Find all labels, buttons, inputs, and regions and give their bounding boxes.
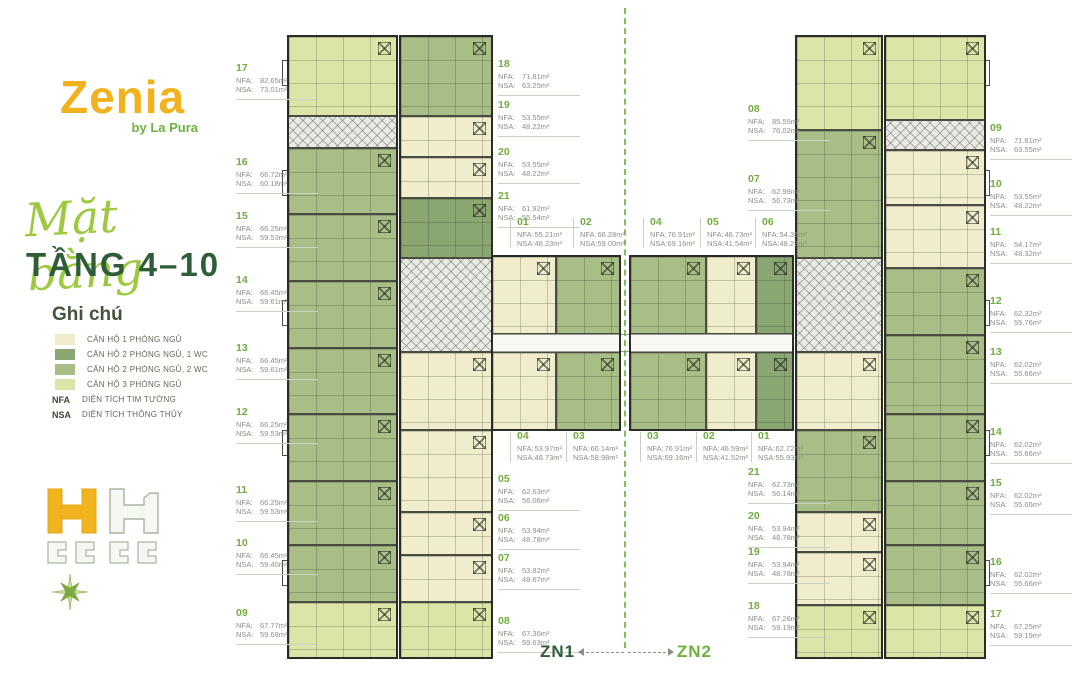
area-value: 55.93m² [776, 453, 804, 462]
area-value: 71.81m² [1014, 136, 1042, 145]
area-value: 59.19m² [1014, 631, 1042, 640]
area-key: NFA: [748, 524, 772, 533]
area-key: NSA: [748, 623, 772, 632]
nsa-row: NSA:48.22m² [498, 122, 580, 131]
building-outline [629, 255, 794, 431]
unit-number: 08 [498, 617, 580, 626]
unit-label-zn2-06: 06NFA:54.35m²NSA:48.23m² [755, 218, 807, 248]
nsa-row: NSA:59.40m² [236, 560, 318, 569]
area-key: NSA: [236, 297, 260, 306]
area-value: 59.68m² [260, 630, 288, 639]
area-value: 66.45m² [260, 356, 288, 365]
area-value: 62.98m² [772, 187, 800, 196]
area-key: NSA: [748, 126, 772, 135]
area-value: 48.67m² [522, 575, 550, 584]
area-key: NFA: [990, 240, 1014, 249]
nsa-row: NSA:41.54m² [707, 239, 752, 248]
area-value: 48.22m² [522, 122, 550, 131]
unit-number: 06 [498, 514, 580, 523]
nsa-row: NSA:48.73m² [517, 453, 562, 462]
nsa-row: NSA:55.93m² [758, 453, 803, 462]
nsa-row: NSA:63.25m² [498, 81, 580, 90]
area-value: 48.78m² [522, 535, 550, 544]
area-value: 62.02m² [1014, 440, 1042, 449]
area-value: 76.91m² [664, 444, 692, 453]
nsa-row: NSA:60.18m² [236, 179, 318, 188]
unit-number: 16 [236, 158, 318, 167]
area-value: 59.53m² [260, 507, 288, 516]
nfa-row: NFA:67.36m² [498, 629, 580, 638]
unit-number: 17 [236, 64, 318, 73]
area-key: NFA: [498, 566, 522, 575]
area-value: 48.78m² [772, 533, 800, 542]
nsa-row: NSA:58.98m² [573, 453, 618, 462]
area-key: NFA: [647, 444, 664, 453]
area-key: NFA: [236, 356, 260, 365]
area-value: 55.66m² [1014, 579, 1042, 588]
unit-number: 12 [236, 408, 318, 417]
unit-label-zn2-17: 17NFA:67.25m²NSA:59.19m² [990, 610, 1072, 646]
unit-label-zn1-13: 13NFA:66.45m²NSA:59.61m² [236, 344, 318, 380]
unit-label-zn1-18: 18NFA:71.81m²NSA:63.25m² [498, 60, 580, 96]
nfa-row: NFA:62.72m² [758, 444, 803, 453]
area-key: NSA: [990, 145, 1014, 154]
area-value: 53.82m² [522, 566, 550, 575]
unit-number: 18 [748, 602, 830, 611]
area-value: 69.16m² [668, 239, 696, 248]
area-key: NFA: [990, 491, 1014, 500]
area-key: NSA: [990, 500, 1014, 509]
zone-zn2-label: ZN2 [677, 642, 712, 662]
nsa-row: NSA:56.73m² [748, 196, 830, 205]
area-key: NSA: [236, 179, 260, 188]
nsa-row: NSA:48.32m² [990, 249, 1072, 258]
nfa-row: NFA:66.25m² [236, 224, 318, 233]
area-value: 66.14m² [590, 444, 618, 453]
unit-number: 21 [748, 468, 830, 477]
unit-number: 01 [758, 432, 803, 441]
area-value: 66.45m² [260, 551, 288, 560]
nfa-row: NFA:62.73m² [748, 480, 830, 489]
unit-label-zn2-03: 03NFA:76.91m²NSA:69.16m² [640, 432, 692, 462]
area-key: NFA: [703, 444, 720, 453]
unit-number: 03 [573, 432, 618, 441]
nsa-row: NSA:73.01m² [236, 85, 318, 94]
nsa-row: NSA:59.61m² [236, 365, 318, 374]
area-value: 62.02m² [1014, 360, 1042, 369]
nfa-row: NFA:62.02m² [990, 570, 1072, 579]
nsa-row: NSA:48.22m² [990, 201, 1072, 210]
area-value: 66.25m² [260, 420, 288, 429]
unit-label-zn2-12: 12NFA:62.32m²NSA:55.76m² [990, 297, 1072, 333]
unit-label-zn2-14: 14NFA:62.02m²NSA:55.66m² [990, 428, 1072, 464]
area-value: 66.25m² [260, 498, 288, 507]
unit-number: 12 [990, 297, 1072, 306]
building-outline [491, 255, 621, 431]
unit-label-zn2-01: 01NFA:62.72m²NSA:55.93m² [751, 432, 803, 462]
arrow-left-icon [578, 648, 584, 656]
area-value: 59.61m² [260, 297, 288, 306]
area-value: 55.21m² [534, 230, 562, 239]
area-key: NFA: [236, 551, 260, 560]
area-key: NFA: [236, 420, 260, 429]
unit-number: 16 [990, 558, 1072, 567]
area-key: NSA: [990, 579, 1014, 588]
nfa-row: NFA:66.25m² [236, 498, 318, 507]
unit-number: 15 [990, 479, 1072, 488]
area-key: NSA: [748, 569, 772, 578]
nsa-row: NSA:55.66m² [990, 579, 1072, 588]
area-value: 53.94m² [522, 526, 550, 535]
nsa-row: NSA:59.19m² [990, 631, 1072, 640]
area-value: 66.25m² [260, 224, 288, 233]
nsa-row: NSA:63.55m² [990, 145, 1072, 154]
area-key: NSA: [647, 453, 665, 462]
nsa-row: NSA:55.66m² [990, 500, 1072, 509]
area-value: 61.92m² [522, 204, 550, 213]
nsa-row: NSA:48.22m² [498, 169, 580, 178]
area-key: NFA: [517, 230, 534, 239]
area-key: NSA: [703, 453, 721, 462]
area-key: NFA: [517, 444, 534, 453]
nfa-row: NFA:71.81m² [498, 72, 580, 81]
unit-label-zn1-19: 19NFA:53.55m²NSA:48.22m² [498, 101, 580, 137]
unit-number: 20 [748, 512, 830, 521]
nsa-row: NSA:48.67m² [498, 575, 580, 584]
area-key: NFA: [748, 117, 772, 126]
area-value: 59.61m² [260, 365, 288, 374]
unit-label-zn1-11: 11NFA:66.25m²NSA:59.53m² [236, 486, 318, 522]
area-key: NFA: [650, 230, 667, 239]
area-value: 55.66m² [1014, 369, 1042, 378]
unit-label-zn1-05: 05NFA:62.63m²NSA:56.06m² [498, 475, 580, 511]
area-value: 58.98m² [591, 453, 619, 462]
area-value: 46.73m² [724, 230, 752, 239]
area-value: 66.45m² [260, 288, 288, 297]
nfa-row: NFA:53.82m² [498, 566, 580, 575]
area-value: 60.18m² [260, 179, 288, 188]
nsa-row: NSA:48.78m² [748, 569, 830, 578]
area-value: 53.97m² [534, 444, 562, 453]
zone-labels-bar: ZN1 ZN2 [540, 641, 712, 663]
area-key: NFA: [748, 614, 772, 623]
area-key: NFA: [498, 526, 522, 535]
area-key: NFA: [498, 113, 522, 122]
nsa-row: NSA:59.19m² [748, 623, 830, 632]
area-key: NSA: [236, 365, 260, 374]
area-key: NFA: [990, 360, 1014, 369]
unit-number: 01 [517, 218, 562, 227]
area-value: 85.55m² [772, 117, 800, 126]
unit-label-zn1-02: 02NFA:66.28m²NSA:59.00m² [573, 218, 625, 248]
area-value: 48.78m² [772, 569, 800, 578]
unit-label-zn1-12: 12NFA:66.25m²NSA:59.53m² [236, 408, 318, 444]
area-value: 67.77m² [260, 621, 288, 630]
area-key: NSA: [650, 239, 668, 248]
nsa-row: NSA:48.78m² [498, 535, 580, 544]
area-key: NFA: [498, 487, 522, 496]
area-key: NFA: [580, 230, 597, 239]
area-key: NFA: [236, 288, 260, 297]
nfa-row: NFA:62.63m² [498, 487, 580, 496]
area-key: NFA: [990, 622, 1014, 631]
area-value: 67.26m² [772, 614, 800, 623]
area-value: 54.17m² [1014, 240, 1042, 249]
nfa-row: NFA:53.55m² [498, 160, 580, 169]
nfa-row: NFA:66.14m² [573, 444, 618, 453]
area-value: 59.53m² [260, 233, 288, 242]
unit-number: 02 [703, 432, 748, 441]
area-value: 82.65m² [260, 76, 288, 85]
area-value: 48.73m² [535, 453, 563, 462]
area-key: NFA: [498, 629, 522, 638]
nfa-row: NFA:66.72m² [236, 170, 318, 179]
unit-number: 09 [236, 609, 318, 618]
area-value: 41.54m² [725, 239, 753, 248]
nfa-row: NFA:62.98m² [748, 187, 830, 196]
unit-number: 02 [580, 218, 625, 227]
area-value: 63.25m² [522, 81, 550, 90]
area-value: 59.19m² [772, 623, 800, 632]
area-value: 53.94m² [772, 524, 800, 533]
area-value: 55.76m² [1014, 318, 1042, 327]
nfa-row: NFA:66.45m² [236, 551, 318, 560]
area-key: NFA: [498, 72, 522, 81]
nsa-row: NSA:59.68m² [236, 630, 318, 639]
nfa-row: NFA:46.73m² [707, 230, 752, 239]
area-key: NSA: [990, 318, 1014, 327]
unit-label-zn1-17: 17NFA:82.65m²NSA:73.01m² [236, 64, 318, 100]
nfa-row: NFA:62.32m² [990, 309, 1072, 318]
area-key: NSA: [517, 239, 535, 248]
unit-number: 17 [990, 610, 1072, 619]
area-value: 67.36m² [522, 629, 550, 638]
nfa-row: NFA:46.59m² [703, 444, 748, 453]
area-value: 56.14m² [772, 489, 800, 498]
area-key: NSA: [236, 630, 260, 639]
unit-label-zn1-16: 16NFA:66.72m²NSA:60.18m² [236, 158, 318, 194]
area-key: NSA: [762, 239, 780, 248]
nfa-row: NFA:66.28m² [580, 230, 625, 239]
area-value: 62.02m² [1014, 491, 1042, 500]
area-value: 69.16m² [665, 453, 693, 462]
area-value: 67.25m² [1014, 622, 1042, 631]
floorplan-page: Zenia by La Pura Mặt bằng TẦNG 4–10 Ghi … [0, 0, 1080, 698]
nfa-row: NFA:61.92m² [498, 204, 580, 213]
area-key: NFA: [990, 440, 1014, 449]
area-value: 48.23m² [780, 239, 808, 248]
area-key: NSA: [236, 560, 260, 569]
unit-number: 15 [236, 212, 318, 221]
nfa-row: NFA:66.45m² [236, 356, 318, 365]
unit-number: 14 [236, 276, 318, 285]
area-value: 48.22m² [1014, 201, 1042, 210]
area-key: NSA: [990, 449, 1014, 458]
area-key: NSA: [236, 233, 260, 242]
area-key: NSA: [990, 249, 1014, 258]
nsa-row: NSA:69.16m² [647, 453, 692, 462]
unit-number: 14 [990, 428, 1072, 437]
area-key: NFA: [236, 621, 260, 630]
nsa-row: NSA:59.61m² [236, 297, 318, 306]
area-key: NSA: [498, 535, 522, 544]
area-key: NFA: [707, 230, 724, 239]
area-value: 59.53m² [260, 429, 288, 438]
area-key: NFA: [758, 444, 775, 453]
area-key: NSA: [236, 507, 260, 516]
area-key: NSA: [498, 122, 522, 131]
area-key: NFA: [990, 136, 1014, 145]
floorplan-canvas: 17NFA:82.65m²NSA:73.01m²16NFA:66.72m²NSA… [0, 0, 1080, 698]
unit-number: 11 [236, 486, 318, 495]
area-key: NFA: [748, 187, 772, 196]
unit-label-zn2-04: 04NFA:76.91m²NSA:69.16m² [643, 218, 695, 248]
area-value: 53.55m² [1014, 192, 1042, 201]
unit-label-zn1-09: 09NFA:67.77m²NSA:59.68m² [236, 609, 318, 645]
area-key: NSA: [498, 496, 522, 505]
area-key: NSA: [498, 169, 522, 178]
nfa-row: NFA:82.65m² [236, 76, 318, 85]
nsa-row: NSA:59.53m² [236, 429, 318, 438]
area-key: NSA: [498, 81, 522, 90]
nfa-row: NFA:85.55m² [748, 117, 830, 126]
nfa-row: NFA:55.21m² [517, 230, 562, 239]
unit-number: 19 [498, 101, 580, 110]
nsa-row: NSA:41.52m² [703, 453, 748, 462]
area-key: NSA: [758, 453, 776, 462]
zone-zn1-label: ZN1 [540, 642, 575, 662]
area-value: 56.73m² [772, 196, 800, 205]
area-value: 55.66m² [1014, 449, 1042, 458]
unit-label-zn2-09: 09NFA:71.81m²NSA:63.55m² [990, 124, 1072, 160]
unit-number: 18 [498, 60, 580, 69]
nsa-row: NSA:59.53m² [236, 233, 318, 242]
unit-label-zn2-08: 08NFA:85.55m²NSA:76.02m² [748, 105, 830, 141]
area-key: NSA: [236, 429, 260, 438]
area-value: 62.32m² [1014, 309, 1042, 318]
unit-number: 21 [498, 192, 580, 201]
area-key: NFA: [498, 160, 522, 169]
nsa-row: NSA:48.78m² [748, 533, 830, 542]
nfa-row: NFA:71.81m² [990, 136, 1072, 145]
unit-label-zn2-02: 02NFA:46.59m²NSA:41.52m² [696, 432, 748, 462]
unit-label-zn2-18: 18NFA:67.26m²NSA:59.19m² [748, 602, 830, 638]
area-key: NFA: [573, 444, 590, 453]
nfa-row: NFA:67.26m² [748, 614, 830, 623]
nfa-row: NFA:62.02m² [990, 491, 1072, 500]
area-value: 62.72m² [775, 444, 803, 453]
unit-label-zn2-11: 11NFA:54.17m²NSA:48.32m² [990, 228, 1072, 264]
area-value: 73.01m² [260, 85, 288, 94]
unit-label-zn2-15: 15NFA:62.02m²NSA:55.66m² [990, 479, 1072, 515]
unit-number: 06 [762, 218, 807, 227]
nfa-row: NFA:62.02m² [990, 440, 1072, 449]
area-key: NFA: [748, 480, 772, 489]
unit-number: 09 [990, 124, 1072, 133]
area-key: NSA: [990, 201, 1014, 210]
area-key: NSA: [236, 85, 260, 94]
area-key: NFA: [236, 76, 260, 85]
nsa-row: NSA:55.76m² [990, 318, 1072, 327]
nsa-row: NSA:56.06m² [498, 496, 580, 505]
area-value: 53.94m² [772, 560, 800, 569]
area-value: 56.06m² [522, 496, 550, 505]
area-key: NSA: [498, 575, 522, 584]
nsa-row: NSA:55.66m² [990, 449, 1072, 458]
unit-label-zn1-10: 10NFA:66.45m²NSA:59.40m² [236, 539, 318, 575]
unit-number: 19 [748, 548, 830, 557]
unit-label-zn1-06: 06NFA:53.94m²NSA:48.78m² [498, 514, 580, 550]
unit-number: 13 [236, 344, 318, 353]
area-key: NSA: [580, 239, 598, 248]
area-key: NSA: [748, 489, 772, 498]
area-value: 62.73m² [772, 480, 800, 489]
nsa-row: NSA:69.16m² [650, 239, 695, 248]
area-key: NFA: [748, 560, 772, 569]
area-key: NSA: [748, 533, 772, 542]
area-key: NFA: [498, 204, 522, 213]
nfa-row: NFA:53.55m² [498, 113, 580, 122]
area-key: NFA: [990, 309, 1014, 318]
building-outline [884, 35, 986, 659]
building-outline [399, 35, 493, 659]
unit-label-zn2-05: 05NFA:46.73m²NSA:41.54m² [700, 218, 752, 248]
nfa-row: NFA:53.94m² [748, 524, 830, 533]
area-value: 54.35m² [779, 230, 807, 239]
area-key: NSA: [707, 239, 725, 248]
unit-label-zn1-01: 01NFA:55.21m²NSA:48.23m² [510, 218, 562, 248]
unit-label-zn2-13: 13NFA:62.02m²NSA:55.66m² [990, 348, 1072, 384]
area-value: 63.55m² [1014, 145, 1042, 154]
unit-label-zn1-20: 20NFA:53.55m²NSA:48.22m² [498, 148, 580, 184]
area-key: NFA: [762, 230, 779, 239]
unit-number: 10 [236, 539, 318, 548]
unit-label-zn1-04: 04NFA:53.97m²NSA:48.73m² [510, 432, 562, 462]
area-key: NFA: [990, 570, 1014, 579]
nfa-row: NFA:67.77m² [236, 621, 318, 630]
unit-label-zn2-10: 10NFA:53.55m²NSA:48.22m² [990, 180, 1072, 216]
unit-number: 04 [650, 218, 695, 227]
unit-label-zn2-16: 16NFA:62.02m²NSA:55.66m² [990, 558, 1072, 594]
area-value: 53.55m² [522, 113, 550, 122]
area-value: 66.28m² [597, 230, 625, 239]
nfa-row: NFA:66.25m² [236, 420, 318, 429]
area-value: 62.02m² [1014, 570, 1042, 579]
unit-number: 13 [990, 348, 1072, 357]
unit-number: 05 [498, 475, 580, 484]
zone-divider-line [624, 8, 626, 648]
area-value: 55.66m² [1014, 500, 1042, 509]
area-key: NSA: [517, 453, 535, 462]
area-value: 71.81m² [522, 72, 550, 81]
area-key: NFA: [990, 192, 1014, 201]
area-value: 59.00m² [598, 239, 626, 248]
area-value: 48.22m² [522, 169, 550, 178]
unit-number: 05 [707, 218, 752, 227]
unit-label-zn2-07: 07NFA:62.98m²NSA:56.73m² [748, 175, 830, 211]
unit-label-zn1-03: 03NFA:66.14m²NSA:58.98m² [566, 432, 618, 462]
nsa-row: NSA:48.23m² [517, 239, 562, 248]
dashed-leader-right [628, 652, 666, 653]
unit-number: 11 [990, 228, 1072, 237]
nfa-row: NFA:53.55m² [990, 192, 1072, 201]
unit-label-zn1-07: 07NFA:53.82m²NSA:48.67m² [498, 554, 580, 590]
unit-number: 07 [498, 554, 580, 563]
area-value: 53.55m² [522, 160, 550, 169]
nsa-row: NSA:59.53m² [236, 507, 318, 516]
area-value: 41.52m² [721, 453, 749, 462]
nfa-row: NFA:54.35m² [762, 230, 807, 239]
